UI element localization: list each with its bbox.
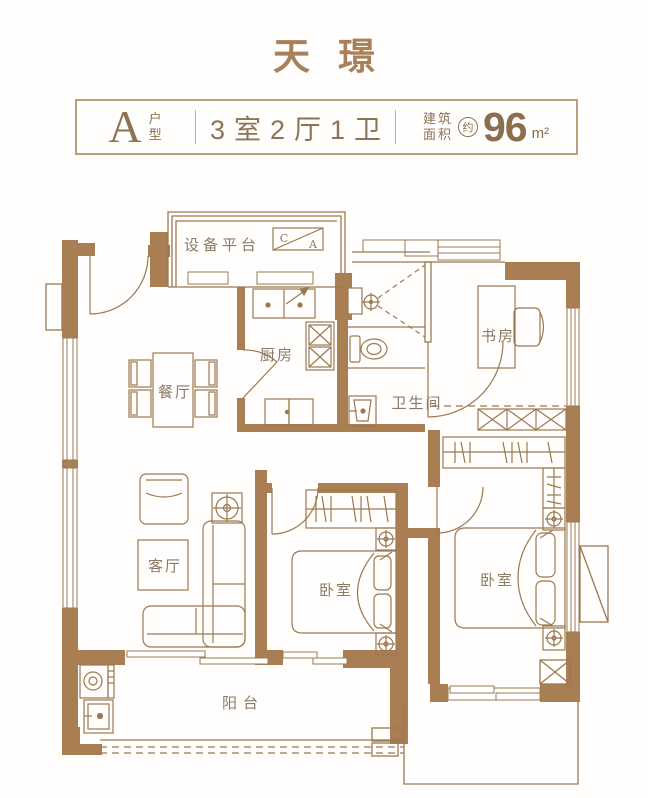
built-area-label: 建筑 面积 (423, 111, 453, 142)
page-title: 天璟 (0, 26, 648, 80)
unit-type-letter: A (108, 104, 141, 150)
label-equipment-platform: 设备平台 (184, 236, 260, 254)
floor-plan: 设备平台 厨房 餐厅 卫生间 书房 客厅 卧室 卧室 阳台 C A (0, 190, 648, 798)
area-value: 96 (483, 107, 527, 148)
label-living: 客厅 (148, 557, 182, 575)
windows (63, 240, 579, 700)
label-kitchen: 厨房 (260, 346, 294, 364)
balcony-fixtures (80, 665, 114, 733)
built-area: 建筑 面积 约 96 m² (396, 107, 576, 148)
unit-type-label: 户 型 (149, 111, 164, 142)
label-bedroom-right: 卧室 (480, 571, 514, 589)
unit-type: A 户 型 (77, 104, 195, 150)
label-bedroom-middle: 卧室 (319, 581, 353, 599)
label-balcony: 阳台 (222, 694, 264, 712)
label-study: 书房 (481, 327, 515, 345)
label-bathroom: 卫生间 (391, 394, 442, 412)
bedroom-right-furniture (443, 437, 565, 650)
room-layout-spec: 3室2厅1卫 (196, 108, 395, 147)
balcony-railing (100, 740, 404, 753)
label-ac-marker-c: C (280, 232, 288, 245)
approx-badge: 约 (458, 117, 478, 137)
unit-info-header: A 户 型 3室2厅1卫 建筑 面积 约 96 m² (75, 99, 578, 155)
bedroom-middle-furniture (292, 490, 396, 655)
label-dining: 餐厅 (158, 383, 192, 401)
area-unit: m² (532, 125, 550, 148)
label-ac-marker-a: A (308, 238, 318, 251)
floorplan-page: 天璟 A 户 型 3室2厅1卫 建筑 面积 约 96 m² (0, 0, 648, 798)
study-furniture (432, 286, 566, 430)
